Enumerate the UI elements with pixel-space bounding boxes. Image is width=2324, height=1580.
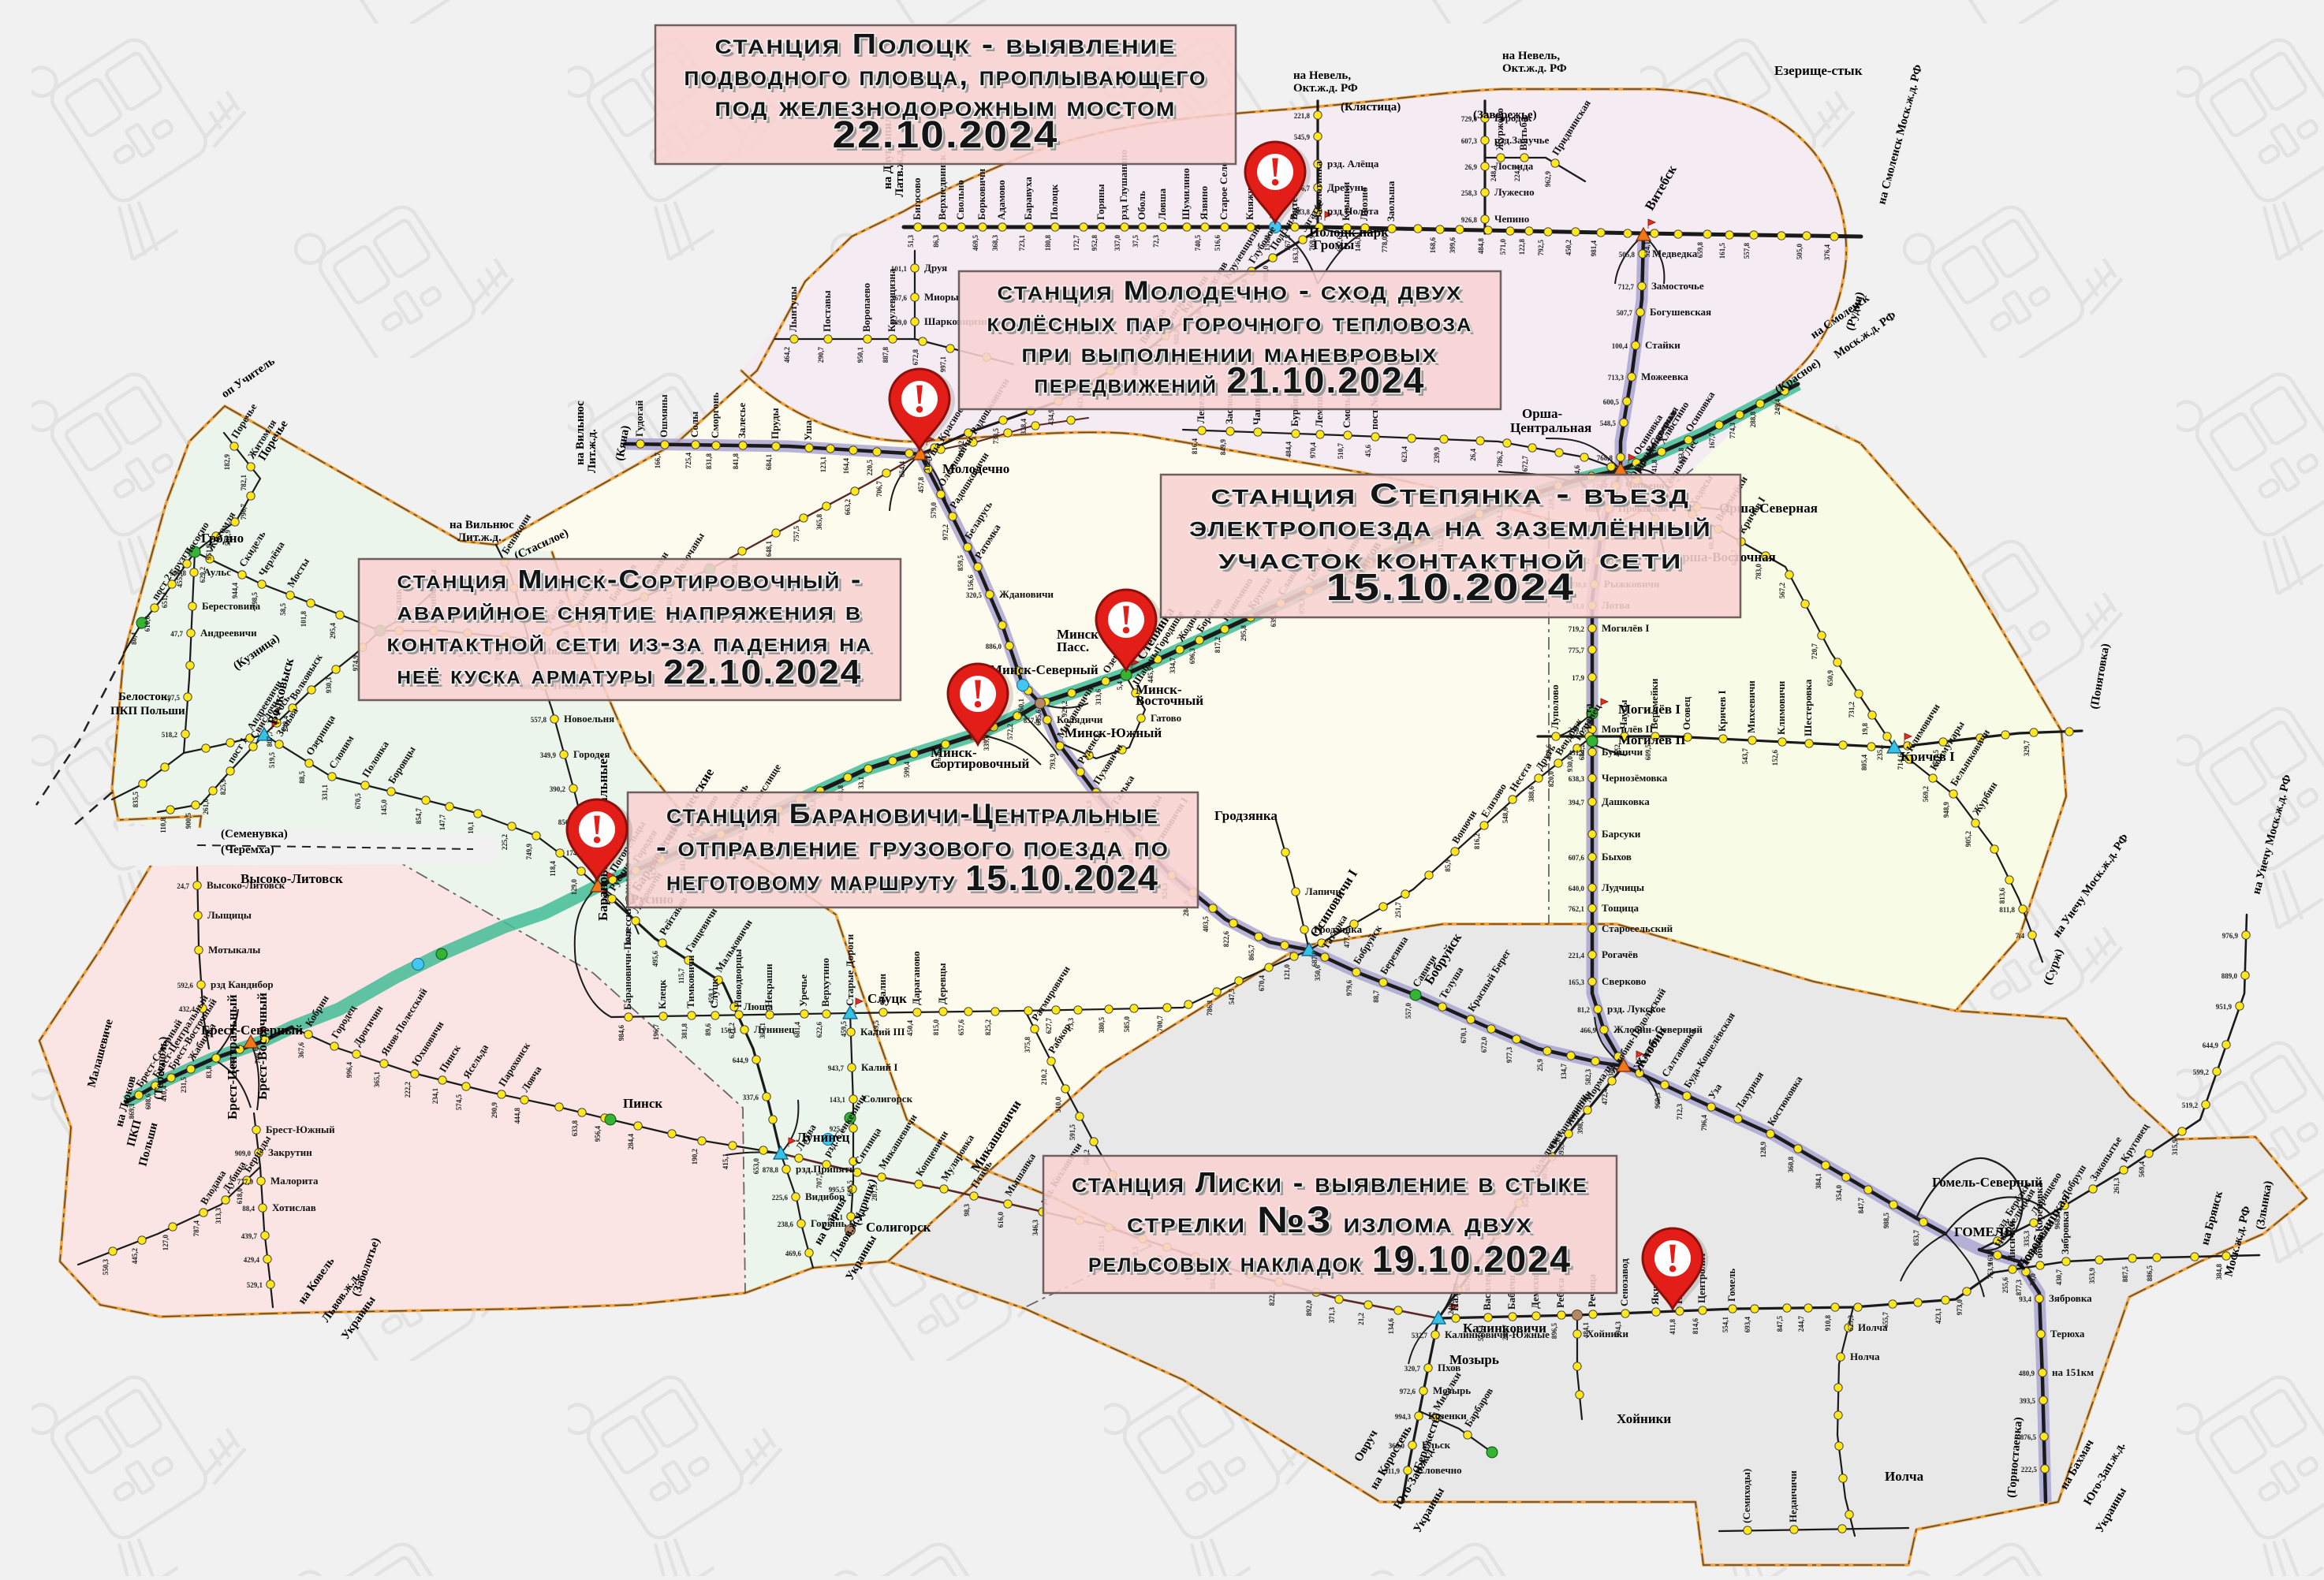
svg-text:783,0: 783,0 [1755,564,1763,580]
svg-text:Мозырь: Мозырь [1449,1352,1499,1367]
svg-text:станция Степянка - въезд: станция Степянка - въезд [1211,478,1691,510]
svg-text:599,8: 599,8 [170,569,187,577]
svg-text:569,4: 569,4 [2138,1161,2146,1178]
svg-text:700,7: 700,7 [1156,1015,1164,1032]
svg-text:Гомель: Гомель [1725,1269,1737,1302]
svg-text:944,4: 944,4 [231,583,239,599]
svg-text:Брест-Центральный: Брест-Центральный [225,994,240,1120]
svg-text:Могилёв I: Могилёв I [1618,702,1681,717]
svg-text:86,3: 86,3 [932,235,940,248]
svg-text:Быхов: Быхов [1602,851,1632,863]
svg-text:(Черемха): (Черемха) [221,844,274,856]
svg-text:225,6: 225,6 [772,1194,789,1202]
svg-text:516,6: 516,6 [1214,235,1222,252]
svg-text:Старое Село: Старое Село [1218,162,1229,220]
svg-text:670,1: 670,1 [1460,1027,1468,1044]
svg-text:Сверково: Сверково [1602,975,1646,987]
svg-text:847,7: 847,7 [1857,1198,1865,1214]
svg-text:976,9: 976,9 [2222,932,2239,940]
svg-text:434,9: 434,9 [1047,409,1055,426]
svg-text:650,9: 650,9 [1826,670,1834,687]
svg-text:313,6: 313,6 [1095,689,1102,706]
svg-text:Миоры: Миоры [924,291,959,303]
svg-text:284,4: 284,4 [627,1134,635,1150]
svg-text:469,6: 469,6 [785,1250,802,1258]
svg-text:248,4: 248,4 [1490,166,1498,182]
svg-text:Некраши: Некраши [763,963,774,1008]
svg-text:777,9: 777,9 [237,1178,254,1186]
svg-text:Баравуха: Баравуха [1022,177,1034,220]
svg-text:Витьба: Витьба [1517,117,1529,151]
svg-text:886,0: 886,0 [986,643,1002,650]
svg-text:725,4: 725,4 [685,453,692,469]
svg-text:484,8: 484,8 [1477,238,1485,255]
svg-text:854,7: 854,7 [415,808,423,825]
svg-text:371,3: 371,3 [1328,1307,1336,1324]
svg-text:607,3: 607,3 [1461,137,1478,145]
svg-text:723,1: 723,1 [1018,235,1026,252]
svg-text:592,6: 592,6 [177,982,194,989]
svg-text:817,2: 817,2 [1214,637,1222,654]
svg-text:399,6: 399,6 [1449,237,1457,254]
svg-text:147,7: 147,7 [438,814,446,831]
svg-text:472,4: 472,4 [1601,1089,1609,1105]
svg-text:83,8: 83,8 [205,1066,213,1079]
svg-text:713,3: 713,3 [1608,374,1625,382]
svg-text:100,4: 100,4 [1612,342,1628,350]
svg-text:320,5: 320,5 [966,591,983,599]
svg-text:365,8: 365,8 [815,514,823,531]
svg-text:81,2: 81,2 [1577,1006,1590,1014]
svg-text:811,8: 811,8 [1999,906,2015,914]
svg-text:684,1: 684,1 [765,454,773,471]
svg-text:!: ! [971,672,984,717]
svg-text:Старые Дороги: Старые Дороги [844,933,856,1006]
svg-text:Могилёв II: Могилёв II [1618,732,1686,747]
svg-text:712,7: 712,7 [1618,283,1635,291]
svg-text:334,7: 334,7 [1169,658,1177,674]
svg-text:Восточный: Восточный [1136,693,1203,708]
svg-text:390,2: 390,2 [550,785,566,793]
svg-text:Окт.ж.д. РФ: Окт.ж.д. РФ [1502,62,1567,75]
svg-text:816,4: 816,4 [1191,438,1199,455]
svg-text:684,2: 684,2 [1578,744,1586,761]
svg-text:380,5: 380,5 [1098,1017,1106,1034]
svg-text:Тимковичи: Тимковичи [685,955,696,1008]
svg-text:на Невель,: на Невель, [1293,69,1351,82]
svg-text:Минск-Северный: Минск-Северный [990,662,1099,677]
svg-text:Брест-Южный: Брест-Южный [266,1124,335,1135]
svg-text:815,0: 815,0 [932,1019,940,1036]
svg-text:672,0: 672,0 [1480,1037,1488,1053]
svg-text:123,1: 123,1 [819,456,827,473]
svg-text:(Завережье): (Завережье) [1473,109,1537,121]
svg-text:26,9: 26,9 [1464,163,1477,171]
svg-text:110,8: 110,8 [159,818,167,833]
svg-text:222,5: 222,5 [2021,1466,2038,1474]
svg-text:972,2: 972,2 [942,524,949,541]
svg-text:145,0: 145,0 [380,799,388,816]
svg-text:на Вильнюс: на Вильнюс [450,519,514,531]
svg-text:152,6: 152,6 [1771,750,1779,766]
svg-text:607,6: 607,6 [1569,854,1585,862]
svg-text:164,4: 164,4 [842,458,850,475]
svg-text:786,1: 786,1 [1206,1000,1214,1016]
svg-text:221,4: 221,4 [1569,952,1585,960]
svg-text:859,5: 859,5 [957,555,964,572]
svg-text:Клецк: Клецк [656,979,668,1009]
svg-text:353,9: 353,9 [2088,1268,2096,1284]
svg-text:388,6: 388,6 [1528,786,1535,803]
svg-text:Михеевичи: Михеевичи [1745,680,1757,733]
svg-text:Солигорск: Солигорск [866,1220,931,1235]
svg-text:825,2: 825,2 [984,1019,992,1036]
svg-text:Деревцы: Деревцы [936,963,948,1004]
svg-text:58,5: 58,5 [279,603,287,616]
svg-text:Медведка: Медведка [1652,248,1698,259]
svg-text:Дашковка: Дашковка [1602,796,1650,807]
svg-text:831,8: 831,8 [705,453,713,470]
svg-text:15.10.2024: 15.10.2024 [1326,567,1576,609]
svg-text:!: ! [1666,1236,1679,1281]
svg-text:731,2: 731,2 [1848,702,1856,718]
svg-text:337,6: 337,6 [743,1094,759,1101]
svg-text:706,7: 706,7 [875,481,883,497]
svg-text:Осовец: Осовец [1681,696,1692,730]
svg-text:47,7: 47,7 [170,630,183,638]
svg-text:161,4: 161,4 [1986,1249,1994,1265]
svg-text:261,0: 261,0 [202,799,210,815]
svg-text:электропоезда на заземлённый: электропоезда на заземлённый [1189,510,1712,542]
svg-text:816,2: 816,2 [1473,833,1481,850]
svg-text:970,4: 970,4 [1309,442,1317,459]
svg-text:129,0: 129,0 [570,879,578,896]
svg-text:849,9: 849,9 [1219,439,1227,456]
svg-text:749,9: 749,9 [525,844,533,860]
svg-text:Язвино: Язвино [1198,186,1210,220]
svg-text:Терюха: Терюха [2050,1328,2085,1340]
svg-text:45,6: 45,6 [1364,445,1372,457]
svg-text:644,9: 644,9 [2203,1042,2219,1049]
svg-text:510,7: 510,7 [1337,443,1345,460]
svg-text:368,3: 368,3 [991,235,999,252]
svg-text:26,4: 26,4 [1469,449,1477,461]
svg-text:896,5: 896,5 [1550,1323,1558,1340]
svg-text:532,7: 532,7 [1412,1332,1428,1340]
svg-text:618,0: 618,0 [236,1188,244,1205]
svg-text:Орша-: Орша- [1522,406,1563,421]
svg-text:328,4: 328,4 [1020,419,1028,435]
svg-text:430,7: 430,7 [2055,1269,2063,1286]
svg-text:Крулевщизна: Крулевщизна [886,268,897,332]
svg-text:973,0: 973,0 [1956,1299,1964,1316]
svg-text:Сморгонь: Сморгонь [709,393,721,438]
svg-text:510,0: 510,0 [1054,1097,1062,1113]
svg-text:Малорита: Малорита [270,1175,319,1187]
svg-text:464,2: 464,2 [783,347,791,363]
svg-text:Шестеровка: Шестеровка [1802,679,1814,736]
svg-text:384,1: 384,1 [1815,1173,1822,1190]
svg-text:782,1: 782,1 [240,475,248,491]
svg-text:Барановичи-Полесские: Барановичи-Полесские [621,901,633,1010]
svg-text:210,2: 210,2 [1040,1069,1048,1086]
svg-text:793,9: 793,9 [1049,754,1057,770]
svg-text:696,3: 696,3 [1188,648,1196,665]
svg-text:977,3: 977,3 [1505,1047,1513,1064]
svg-text:196,7: 196,7 [652,1024,660,1041]
svg-text:Воропаево: Воропаево [860,283,872,332]
svg-text:889,0: 889,0 [2221,972,2238,980]
svg-text:!: ! [1119,598,1132,643]
svg-text:Неданчичи: Неданчичи [1787,1470,1799,1522]
svg-text:Старосельский: Старосельский [1602,922,1673,934]
svg-text:550,3: 550,3 [102,1259,110,1276]
svg-text:337,0: 337,0 [1114,235,1121,252]
svg-text:644,9: 644,9 [733,1056,749,1064]
svg-text:Брест-Северный: Брест-Северный [201,1023,303,1038]
svg-text:365,1: 365,1 [373,1071,381,1088]
svg-text:Барсуки: Барсуки [1602,828,1641,840]
svg-text:792,5: 792,5 [1537,240,1545,256]
svg-text:Слуцк: Слуцк [867,991,907,1006]
svg-text:926,8: 926,8 [1461,216,1478,224]
svg-text:376,4: 376,4 [1823,244,1831,261]
svg-text:853,7: 853,7 [1912,1230,1920,1246]
svg-text:5,4: 5,4 [1116,681,1124,691]
svg-text:Калинковичи: Калинковичи [1463,1321,1546,1336]
svg-text:88,7: 88,7 [1372,990,1380,1003]
svg-text:Стайки: Стайки [1645,339,1681,351]
svg-text:168,6: 168,6 [1429,237,1437,254]
svg-text:459,5: 459,5 [840,1021,848,1038]
svg-text:88,4: 88,4 [242,1205,255,1213]
svg-text:354,0: 354,0 [1835,1185,1843,1202]
svg-text:774,3: 774,3 [1729,423,1736,439]
svg-text:Лунинец: Лунинец [796,1130,850,1145]
svg-text:Замосточье: Замосточье [1651,280,1704,292]
svg-text:572,2: 572,2 [1006,724,1014,740]
svg-text:21,2: 21,2 [1357,1313,1365,1325]
svg-text:547,5: 547,5 [1228,989,1236,1005]
svg-text:659,8: 659,8 [1696,242,1704,259]
svg-text:231,5: 231,5 [180,1077,188,1094]
svg-text:979,6: 979,6 [1345,980,1353,997]
svg-text:384,8: 384,8 [2215,1264,2223,1280]
svg-text:629,3: 629,3 [1847,1315,1855,1332]
svg-text:(Клястица): (Клястица) [1341,101,1401,114]
svg-text:807,7: 807,7 [266,731,274,747]
svg-text:122,8: 122,8 [1518,239,1526,255]
svg-text:450,4: 450,4 [906,1020,914,1037]
svg-text:411,8: 411,8 [1669,1319,1677,1335]
svg-text:рзд. Алёща: рзд. Алёща [1327,158,1379,170]
svg-text:Ловша: Ловша [1156,188,1168,220]
svg-text:261,3: 261,3 [2113,1178,2121,1194]
svg-text:681,4: 681,4 [793,1022,801,1038]
svg-text:995,5: 995,5 [829,1186,845,1194]
svg-text:740,5: 740,5 [1194,235,1202,252]
svg-text:180,8: 180,8 [1044,235,1052,252]
svg-text:507,7: 507,7 [1617,309,1633,317]
svg-text:Громы: Громы [1313,237,1354,252]
svg-text:835,5: 835,5 [132,792,140,808]
svg-text:161,5: 161,5 [1718,243,1726,259]
svg-text:518,2: 518,2 [162,731,178,739]
svg-text:950,1: 950,1 [856,347,864,363]
svg-text:Чернозёмовка: Чернозёмовка [1602,772,1668,784]
svg-text:!: ! [1268,150,1281,195]
svg-text:Буйничи: Буйничи [1602,746,1643,758]
svg-text:255,6: 255,6 [2001,1277,2009,1294]
svg-text:554,1: 554,1 [1722,1317,1729,1333]
svg-text:Ждановичи: Ждановичи [999,588,1054,600]
svg-text:на Вильнюс: на Вильнюс [574,401,587,465]
svg-text:рзд Полота: рзд Полота [1327,205,1379,217]
svg-text:608,6: 608,6 [144,1094,152,1110]
svg-text:996,4: 996,4 [345,1062,353,1079]
svg-text:Зябровка: Зябровка [2049,1292,2092,1304]
svg-text:670,5: 670,5 [354,793,362,810]
svg-text:Гродно: Гродно [201,531,244,546]
svg-text:877,3: 877,3 [2015,1280,2023,1296]
svg-text:260,1: 260,1 [1017,699,1025,715]
svg-text:ГОМЕЛЬ: ГОМЕЛЬ [1954,1224,2013,1239]
svg-text:331,1: 331,1 [321,784,329,801]
svg-text:663,2: 663,2 [844,499,852,516]
svg-text:колёсных пар горочного теплово: колёсных пар горочного тепловоза [987,307,1473,337]
svg-text:22.10.2024: 22.10.2024 [833,114,1059,156]
svg-text:329,7: 329,7 [2023,740,2031,757]
svg-text:346,3: 346,3 [1031,1220,1039,1236]
svg-text:952,8: 952,8 [1091,235,1099,252]
svg-text:Горяны: Горяны [1095,184,1106,220]
svg-text:429,4: 429,4 [244,1256,260,1264]
svg-text:Друя: Друя [924,262,947,274]
svg-text:Заольша: Заольша [1385,181,1397,222]
svg-text:Гомель-Северный: Гомель-Северный [1932,1175,2042,1190]
svg-text:Полоцк: Полоцк [1048,184,1060,220]
svg-text:Калий III: Калий III [860,1026,905,1038]
svg-text:480,9: 480,9 [2019,1369,2035,1377]
svg-text:Окт.ж.д. РФ: Окт.ж.д. РФ [1293,82,1358,95]
svg-text:Лыщицы: Лыщицы [207,909,252,921]
svg-text:543,7: 543,7 [1741,748,1749,765]
svg-text:295,4: 295,4 [329,623,337,639]
svg-text:Езерище-стык: Езерище-стык [1774,63,1863,78]
svg-text:Сенозавод: Сенозавод [1618,1258,1630,1306]
svg-text:Мотыкалы: Мотыкалы [208,944,260,956]
svg-text:172,7: 172,7 [1072,235,1080,252]
svg-text:25,9: 25,9 [1536,1059,1544,1071]
svg-text:Лудчицы: Лудчицы [1602,881,1644,893]
svg-text:693,4: 693,4 [1744,1317,1751,1333]
svg-text:Дараганово: Дараганово [910,951,922,1005]
svg-text:654,4: 654,4 [898,461,906,478]
svg-text:600,5: 600,5 [1603,398,1620,406]
svg-text:657,6: 657,6 [957,1019,965,1036]
svg-text:Гудогай: Гудогай [633,400,645,437]
svg-text:!: ! [590,807,603,852]
svg-text:466,9: 466,9 [1580,1027,1597,1034]
svg-text:738,5: 738,5 [992,428,1000,445]
svg-text:258,3: 258,3 [1461,189,1478,197]
svg-text:станция Барановичи-Центральные: станция Барановичи-Центральные [666,799,1159,829]
svg-text:900,5: 900,5 [185,813,192,829]
svg-text:665,5: 665,5 [846,1180,854,1197]
svg-text:Могилёв I: Могилёв I [1602,622,1649,634]
svg-text:Закрутин: Закрутин [268,1146,312,1158]
svg-text:627,7: 627,7 [1045,1018,1053,1034]
svg-text:349,9: 349,9 [540,751,557,759]
svg-text:101,8: 101,8 [300,611,308,628]
svg-text:796,7: 796,7 [240,504,248,520]
svg-text:948,9: 948,9 [1942,802,1950,818]
svg-text:Солигорск: Солигорск [863,1093,913,1105]
svg-text:825,9: 825,9 [219,779,227,796]
svg-text:787,4: 787,4 [192,1220,200,1237]
svg-text:на Невель,: на Невель, [1502,50,1560,62]
svg-text:33,1: 33,1 [857,777,865,789]
svg-text:Залесье: Залесье [736,403,748,438]
svg-text:548,5: 548,5 [1600,419,1617,427]
svg-text:Дретунь: Дретунь [1327,181,1366,193]
svg-text:415,1: 415,1 [722,1153,729,1170]
svg-text:775,7: 775,7 [1569,647,1585,654]
svg-text:529,1: 529,1 [247,1281,263,1289]
svg-text:313,3: 313,3 [214,1208,222,1224]
svg-text:865,7: 865,7 [1248,945,1255,961]
svg-text:рзд Кандибор: рзд Кандибор [211,978,274,990]
svg-text:610,0: 610,0 [144,616,151,632]
svg-text:969,3: 969,3 [1654,1093,1662,1109]
svg-text:станция Лиски - выявление в ст: станция Лиски - выявление в стыке [1072,1166,1588,1198]
svg-text:381,8: 381,8 [681,1023,688,1040]
svg-text:798,5: 798,5 [251,592,259,609]
svg-text:393,5: 393,5 [2020,1397,2036,1405]
svg-text:910,8: 910,8 [1824,1315,1832,1332]
svg-text:887,8: 887,8 [882,347,890,363]
svg-text:Минск-Южный: Минск-Южный [1065,725,1162,740]
svg-text:Калий I: Калий I [861,1061,897,1073]
svg-text:333,1: 333,1 [759,1023,767,1039]
svg-text:72,3: 72,3 [1152,235,1160,248]
svg-text:251,7: 251,7 [1394,902,1402,919]
svg-text:290,7: 290,7 [817,347,825,363]
svg-text:887,5: 887,5 [2121,1266,2129,1283]
svg-text:167,7: 167,7 [1708,433,1716,449]
svg-text:225,2: 225,2 [501,834,509,851]
svg-text:Уша: Уша [802,420,814,441]
svg-text:687,0: 687,0 [1311,951,1319,967]
svg-text:622,6: 622,6 [815,1022,823,1038]
svg-text:Аульс: Аульс [203,566,231,578]
svg-text:943,7: 943,7 [828,1064,845,1072]
svg-text:88,5: 88,5 [298,771,306,784]
svg-text:51,3: 51,3 [907,235,915,248]
svg-text:134,6: 134,6 [1387,1318,1395,1335]
svg-text:Лынтупы: Лынтупы [787,286,799,332]
svg-text:457,8: 457,8 [917,477,925,494]
svg-text:574,5: 574,5 [455,1094,463,1111]
svg-text:239,9: 239,9 [1433,447,1441,464]
svg-text:Лит.ж.д.: Лит.ж.д. [457,531,502,544]
svg-text:720,7: 720,7 [1811,643,1819,660]
svg-text:Новодворцы: Новодворцы [732,949,744,1008]
svg-text:7,4: 7,4 [2016,932,2025,940]
svg-text:648,1: 648,1 [765,541,773,557]
svg-text:Иолча: Иолча [1885,1469,1924,1484]
svg-text:Чепино: Чепино [1494,213,1529,225]
